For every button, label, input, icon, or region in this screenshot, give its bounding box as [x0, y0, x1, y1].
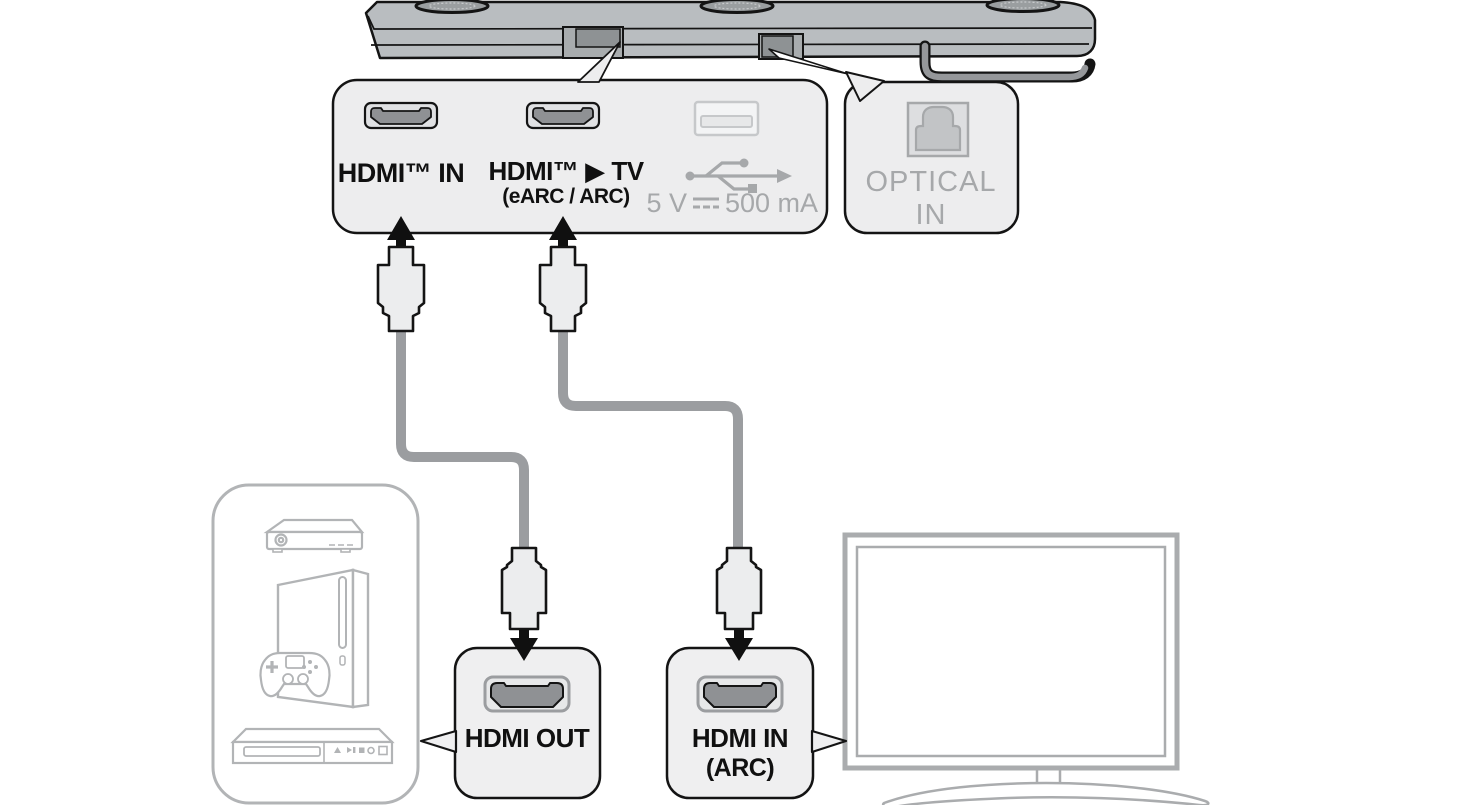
hdmi-in-arc-box: HDMI IN (ARC)	[667, 648, 846, 798]
hdmi-out-port-icon	[485, 677, 569, 711]
usb-voltage-label: 5 V	[646, 188, 687, 218]
hdmi-in-port-icon	[365, 103, 437, 128]
soundbar-foot	[987, 0, 1059, 12]
hdmi-out-box: HDMI OUT	[421, 648, 600, 798]
optical-port-icon	[908, 103, 968, 156]
connection-diagram: HDMI™ IN HDMI™ ▶ TV (eARC / ARC) 5 V 500…	[0, 0, 1465, 805]
disc-player-icon	[233, 729, 392, 763]
hdmi-tv-sublabel: (eARC / ARC)	[502, 185, 629, 208]
hdmi-cable-left	[401, 330, 524, 552]
usb-current-label: 500 mA	[725, 188, 818, 218]
hdmi-out-box-pointer	[421, 731, 456, 752]
source-devices-box	[213, 485, 418, 803]
hdmi-in-arc-port-icon	[698, 677, 782, 711]
hdmi-tv-label: HDMI™ ▶ TV	[488, 156, 644, 186]
hdmi-tv-port-icon	[527, 103, 599, 128]
soundbar	[366, 0, 1095, 77]
ports-panel: HDMI™ IN HDMI™ ▶ TV (eARC / ARC) 5 V 500…	[333, 42, 827, 233]
hdmi-out-label: HDMI OUT	[465, 723, 590, 753]
soundbar-foot	[416, 0, 488, 13]
optical-label-line2: IN	[916, 199, 947, 231]
hdmi-plug-down	[502, 548, 546, 629]
tv-screen	[857, 547, 1165, 756]
hdmi-in-arc-box-pointer	[812, 731, 846, 752]
hdmi-cable-right	[563, 330, 738, 552]
tv-stand-base	[883, 783, 1208, 805]
optical-label-line1: OPTICAL	[865, 166, 996, 198]
tv-outline	[845, 535, 1208, 805]
hdmi-in-label: HDMI™ IN	[338, 158, 465, 188]
hdmi-in-arc-label-line1: HDMI IN	[692, 723, 788, 753]
set-top-box-icon	[267, 520, 362, 552]
diagram-canvas: HDMI™ IN HDMI™ ▶ TV (eARC / ARC) 5 V 500…	[0, 0, 1465, 805]
optical-panel: OPTICAL IN	[845, 72, 1018, 233]
soundbar-foot	[701, 0, 773, 13]
hdmi-plug-up	[378, 247, 424, 331]
hdmi-plug-up	[540, 247, 586, 331]
soundbar-bottom-lip	[371, 44, 1089, 45]
hdmi-in-arc-label-line2: (ARC)	[706, 754, 774, 782]
hdmi-plug-down	[717, 548, 761, 629]
usb-port-icon	[695, 102, 758, 135]
